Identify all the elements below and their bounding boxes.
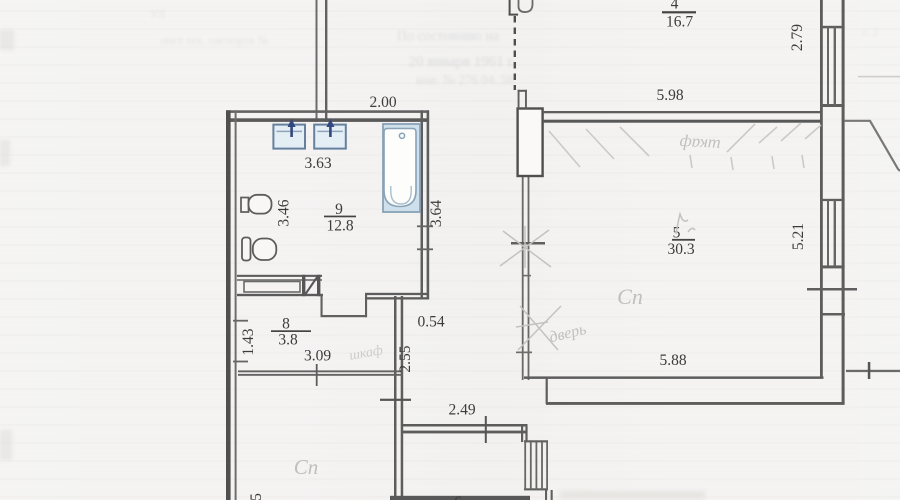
svg-text:лист тех. паспорта №: лист тех. паспорта №	[160, 33, 269, 47]
svg-text:6: 6	[454, 494, 462, 500]
svg-text:3.8: 3.8	[278, 332, 298, 349]
svg-text:2.49: 2.49	[448, 402, 475, 419]
svg-text:16.7: 16.7	[666, 14, 693, 31]
svg-text:5: 5	[248, 493, 265, 500]
svg-text:3.09: 3.09	[304, 348, 331, 365]
svg-text:8: 8	[282, 316, 290, 333]
svg-text:5.21: 5.21	[790, 223, 807, 250]
svg-text:По состоянию на: По состоянию на	[397, 29, 500, 44]
svg-text:30.3: 30.3	[667, 241, 694, 258]
svg-text:дверь: дверь	[548, 321, 588, 347]
svg-text:5.98: 5.98	[656, 87, 683, 104]
svg-text:20 января 1961 г.: 20 января 1961 г.	[408, 54, 515, 70]
svg-text:3.46: 3.46	[276, 199, 293, 226]
svg-text:4: 4	[671, 0, 679, 13]
svg-text:2.00: 2.00	[369, 94, 396, 111]
svg-text:инв. № 276 04. 58: инв. № 276 04. 58	[416, 72, 513, 87]
svg-text:шкаф: шкаф	[679, 134, 721, 155]
svg-text:Сп: Сп	[617, 284, 643, 309]
svg-text:шкаф: шкаф	[348, 343, 384, 364]
svg-text:с. 2: с. 2	[862, 27, 878, 39]
svg-text:2.79: 2.79	[789, 24, 806, 51]
svg-text:Сп: Сп	[294, 455, 319, 479]
svg-text:5.88: 5.88	[659, 352, 686, 369]
svg-text:2.55: 2.55	[397, 345, 414, 372]
svg-text:1.43: 1.43	[240, 328, 257, 355]
svg-text:УЛ: УЛ	[150, 7, 165, 21]
svg-text:9: 9	[335, 201, 343, 218]
svg-text:0.54: 0.54	[417, 314, 444, 331]
svg-text:3.63: 3.63	[304, 155, 331, 172]
svg-text:12.8: 12.8	[326, 218, 353, 235]
svg-text:3.64: 3.64	[428, 200, 445, 227]
